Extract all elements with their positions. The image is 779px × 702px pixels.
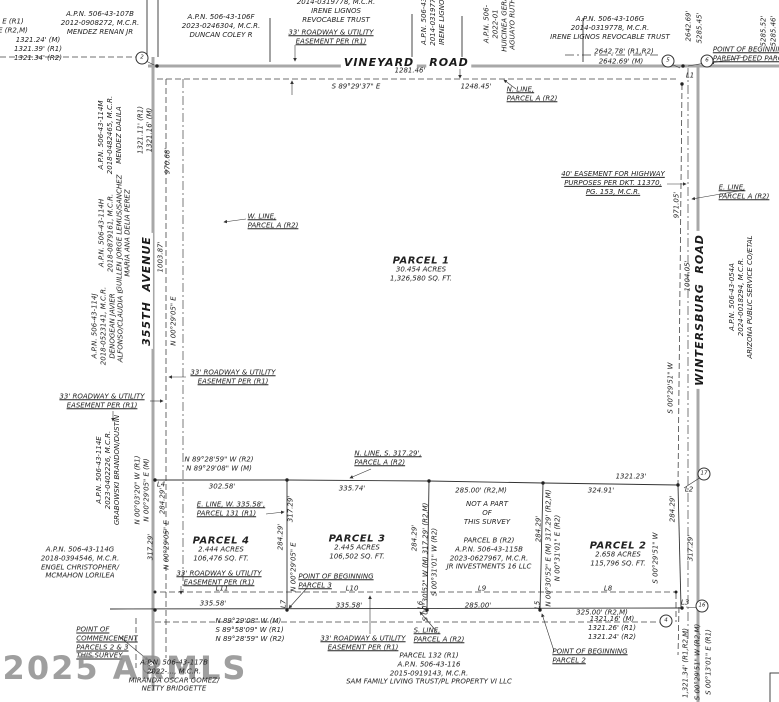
corner-circle-5: 5: [662, 55, 675, 68]
dim-302: 302.58': [209, 483, 235, 492]
survey-plat: A.P.N. 506-43-107B 2012-0908272, M.C.R. …: [0, 0, 779, 702]
n-line-s317: N. LINE, S. 317.29', PARCEL A (R2): [354, 449, 421, 467]
dim-284-l7: 284.29': [277, 524, 286, 550]
dim-1003: 1003.87': [157, 242, 166, 273]
dim-1321-topleft: 1321.24' (M) 1321.39' (R1) 1321.34' (R2): [14, 36, 62, 62]
pob-parcel2: POINT OF BEGINNING PARCEL 2: [552, 647, 627, 665]
apn-guillen: A.P.N. 506-43-114H 2018-0879161, M.C.R. …: [98, 175, 133, 292]
apn-miranda: A.P.N. 506-43-117B 2022-…, M.C.R. MIRAND…: [129, 659, 220, 694]
easement-west-out: 33' ROADWAY & UTILITY EASEMENT PER (R1): [59, 392, 144, 410]
pob-parent-deed: POINT OF BEGINNING PARENT DEED PARCEL: [713, 45, 779, 63]
dim-1321-23: 1321.23': [616, 473, 647, 482]
bearing-l4: N 00°03'20" W (R1) N 00°29'05" E (M): [133, 456, 151, 525]
dim-324-91: 324.91': [588, 487, 614, 496]
corner-circle-4: 4: [660, 615, 673, 628]
corner-circle-2: 2: [136, 52, 149, 65]
dim-1321-34-rot: 1,321.34' (R1,R2,M): [682, 628, 691, 698]
line-label-l8: L8: [604, 585, 612, 594]
vineyard-road-word: ROAD: [426, 57, 471, 69]
dim-1321-bottomright: 1321.16' (M) 1321.26' (R1) 1321.24' (R2): [588, 615, 636, 641]
dim-285-mid: 285.00' (R2,M): [455, 487, 507, 496]
bearing-vineyard: S 89°29'37" E: [332, 83, 381, 92]
dim-317-east: 317.29': [687, 535, 696, 561]
line-label-l1: L1: [686, 72, 694, 81]
easement-west-in: 33' ROADWAY & UTILITY EASEMENT PER (R1): [190, 368, 275, 386]
dim-1004: 1004.05': [684, 261, 693, 292]
apn-irene-rot: A.P.N. 506-43- 2014-0319778 IRENE LIGNOS: [420, 0, 446, 46]
corner-circle-17: 17: [698, 468, 711, 481]
dim-971: 971.05': [673, 192, 682, 218]
highway-easement: 40' EASEMENT FOR HIGHWAY PURPOSES PER DK…: [561, 170, 665, 196]
dim-2642-measured: 2642.69' (M): [599, 58, 644, 67]
bearing-mid-west: N 89°28'59" W (R2) N 89°29'08" W (M): [185, 455, 254, 473]
sam-family-parcel: PARCEL 132 (R1) A.P.N. 506-43-116 2015-0…: [346, 652, 512, 687]
apn-irene-trust: A.P.N. 506-43-106G 2014-0319778, M.C.R. …: [550, 15, 670, 41]
bearing-l7: N 00°29'05" E: [290, 542, 299, 591]
dim-2642-vert: 2642.69': [685, 11, 694, 42]
dim-284-l5: 284.29': [535, 516, 544, 542]
apn-aps: A.P.N. 506-43-054A 2024-0018294, M.C.R. …: [728, 235, 754, 358]
parcel-b-apn: PARCEL B (R2) A.P.N. 506-43-115B 2023-06…: [447, 537, 532, 572]
dim-284-ave: 284.29': [159, 488, 168, 514]
n-line-parcel-a: N. LINE, PARCEL A (R2): [507, 85, 558, 103]
bearing-ave-south: N 00°29'05" E: [163, 520, 172, 569]
bearing-e-line: S 00°29'51" W: [667, 362, 676, 413]
dim-2642-record: 2642.78' (R1,R2): [594, 48, 653, 57]
apn-duncan-coley: A.P.N. 506-43-106F 2023-0246304, M.C.R. …: [182, 13, 260, 39]
parcel1-sub: 30.454 ACRES 1,326,580 SQ. FT.: [390, 265, 452, 283]
dim-5285-right-2: 5285.46': [770, 16, 779, 47]
w-line-parcel-a: W. LINE, PARCEL A (R2): [248, 212, 299, 230]
easement-south: 33' ROADWAY & UTILITY EASEMENT PER (R1): [320, 634, 405, 652]
wintersburg-name: WINTERSBURG ROAD: [694, 231, 706, 389]
apn-mendez-dalila: A.P.N. 506-43-114M 2018-0482465, M.C.R. …: [97, 96, 123, 174]
bearing-l5: N 00°30'52" E (M) 317.29' (R2,M) N 00°31…: [544, 489, 562, 606]
corner-circle-16: 16: [696, 600, 709, 613]
avenue-355-name: 355TH AVENUE: [141, 233, 153, 349]
dim-1248: 1248.45': [461, 83, 492, 92]
line-label-l3: L3: [681, 599, 689, 608]
bearing-south-line: N 89°29'08" W (M) S 89°58'09" W (R1) N 8…: [216, 617, 285, 643]
easement-top-north: 33' ROADWAY & UTILITY EASEMENT PER (R1): [288, 28, 373, 46]
dim-335-74: 335.74': [339, 485, 365, 494]
apn-mendez-renan: A.P.N. 506-43-107B 2012-0908272, M.C.R. …: [61, 10, 139, 36]
corner-circle-6: 6: [701, 55, 714, 68]
dim-285-bottom: 285.00': [465, 602, 491, 611]
line-label-l2: L2: [685, 486, 693, 495]
e-line-parcel-a: E. LINE, PARCEL A (R2): [719, 183, 770, 201]
dim-335-58-a: 335.58': [200, 600, 226, 609]
not-a-part: NOT A PART OF THIS SURVEY: [464, 500, 510, 526]
line-label-l7: L7: [280, 600, 289, 608]
parcel-lines: [110, 0, 779, 702]
dim-970: 970.68': [164, 148, 173, 174]
bearing-w-line: N 00°29'05" E: [170, 296, 179, 345]
line-label-l9: L9: [478, 585, 486, 594]
line-label-l5: L5: [534, 601, 543, 609]
line-label-l10: L10: [346, 585, 359, 594]
dim-284-l6: 284.29': [411, 525, 420, 551]
parcel3-sub: 2.445 ACRES 106,502 SQ. FT.: [329, 543, 384, 561]
dim-5285-vert: 5285.45': [696, 13, 705, 44]
line-label-l11: L11: [216, 585, 229, 594]
line-label-l6: L6: [417, 601, 426, 609]
dim-317-l7: 317.29': [287, 496, 296, 522]
dim-5285-right-1: 5285.52': [760, 16, 769, 47]
bearing-bottomright-1: S 00°29'51" W (R2,M): [694, 624, 703, 700]
dim-1321-ave: 1321.11' (R1) 1321.16' (M): [136, 106, 154, 154]
apn-grabowski: A.P.N. 506-43-114E 2023-0402226, M.C.R. …: [95, 415, 121, 525]
pob-parcel3: POINT OF BEGINNING PARCEL 3: [298, 572, 373, 590]
parcel4-sub: 2.444 ACRES 106,476 SQ. FT.: [193, 545, 248, 563]
apn-irene-partial: 2014-0319778, M.C.R. IRENE LIGNOS REVOCA…: [297, 0, 375, 24]
dim-335-58-b: 335.58': [336, 602, 362, 611]
apn-aguayo-rot: A.P.N. 506- 2022-01 HUICINEA GERA AGUAYO…: [483, 0, 518, 52]
apn-engel: A.P.N. 506-43-114G 2018-0394546, M.C.R. …: [41, 546, 119, 581]
dim-317-ave: 317.29': [147, 534, 156, 560]
dim-1281: 1281.46': [395, 67, 426, 76]
partial-bearing-left: E (R1) E (R2,M): [0, 17, 28, 35]
parcel2-sub: 2.658 ACRES 115,796 SQ. FT.: [590, 550, 645, 568]
dim-284-east: 284.29': [669, 496, 678, 522]
apn-denogean: A.P.N. 506-43-114J 2018-0523141, M.C.R. …: [91, 287, 126, 365]
s-line-parcel-a: S. LINE, PARCEL A (R2): [414, 626, 465, 644]
e-line-w335: E. LINE, W. 335.58', PARCEL 131 (R1): [197, 500, 265, 518]
bearing-parcel2-east: S 00°29'51" W: [652, 532, 661, 583]
bearing-bottomright-2: S 00°13'01" E (R1): [705, 629, 714, 695]
